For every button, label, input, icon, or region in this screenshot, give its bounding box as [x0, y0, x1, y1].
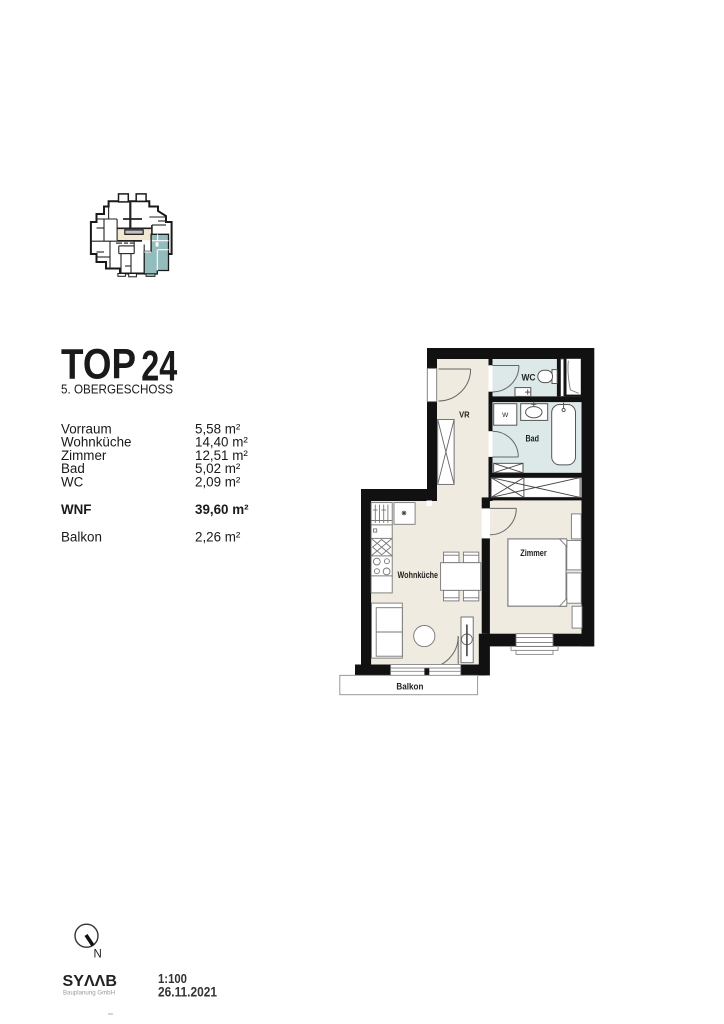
svg-text:39,60 m²: 39,60 m²	[195, 502, 249, 517]
svg-text:WC: WC	[61, 474, 84, 489]
svg-text:Bad: Bad	[525, 434, 539, 444]
svg-text:N: N	[94, 949, 102, 961]
svg-text:Balkon: Balkon	[396, 681, 423, 691]
svg-text:26.11.2021: 26.11.2021	[158, 984, 217, 1000]
svg-text:W: W	[502, 412, 509, 419]
svg-text:VR: VR	[459, 410, 470, 420]
svg-text:Wohnküche: Wohnküche	[398, 570, 439, 580]
svg-text:2,09 m²: 2,09 m²	[195, 474, 241, 489]
svg-text:5. OBERGESCHOSS: 5. OBERGESCHOSS	[61, 382, 173, 397]
svg-text:Zimmer: Zimmer	[520, 548, 547, 558]
svg-text:2,26 m²: 2,26 m²	[195, 530, 241, 545]
svg-text:Balkon: Balkon	[61, 530, 102, 545]
svg-text:WNF: WNF	[61, 502, 92, 517]
svg-text:Bauplanung GmbH: Bauplanung GmbH	[63, 991, 115, 997]
svg-text:WC: WC	[522, 373, 536, 383]
svg-text:SYΛΛB: SYΛΛB	[63, 973, 118, 990]
